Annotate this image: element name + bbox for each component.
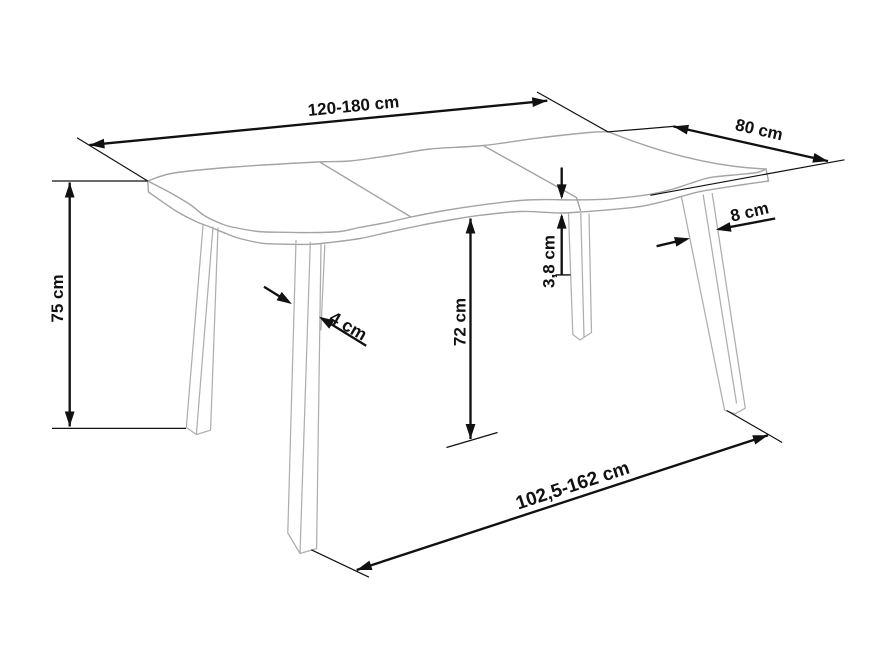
svg-text:75 cm: 75 cm [48, 274, 67, 322]
svg-text:3,8 cm: 3,8 cm [540, 235, 559, 288]
svg-text:72 cm: 72 cm [450, 298, 469, 346]
